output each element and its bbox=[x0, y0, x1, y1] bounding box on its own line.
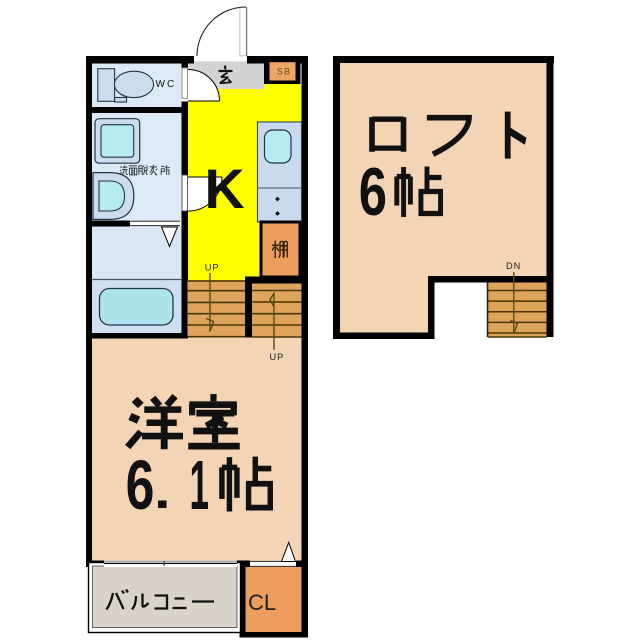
svg-text:6: 6 bbox=[359, 154, 387, 230]
svg-text:WC: WC bbox=[156, 79, 177, 90]
svg-text:SB: SB bbox=[277, 67, 291, 77]
svg-text:1: 1 bbox=[190, 446, 209, 524]
svg-text:CL: CL bbox=[248, 590, 276, 615]
svg-text:DN: DN bbox=[506, 261, 521, 271]
svg-text:K: K bbox=[204, 158, 244, 220]
svg-text:UP: UP bbox=[205, 263, 220, 273]
svg-text:6: 6 bbox=[126, 446, 155, 524]
svg-text:UP: UP bbox=[270, 352, 285, 362]
